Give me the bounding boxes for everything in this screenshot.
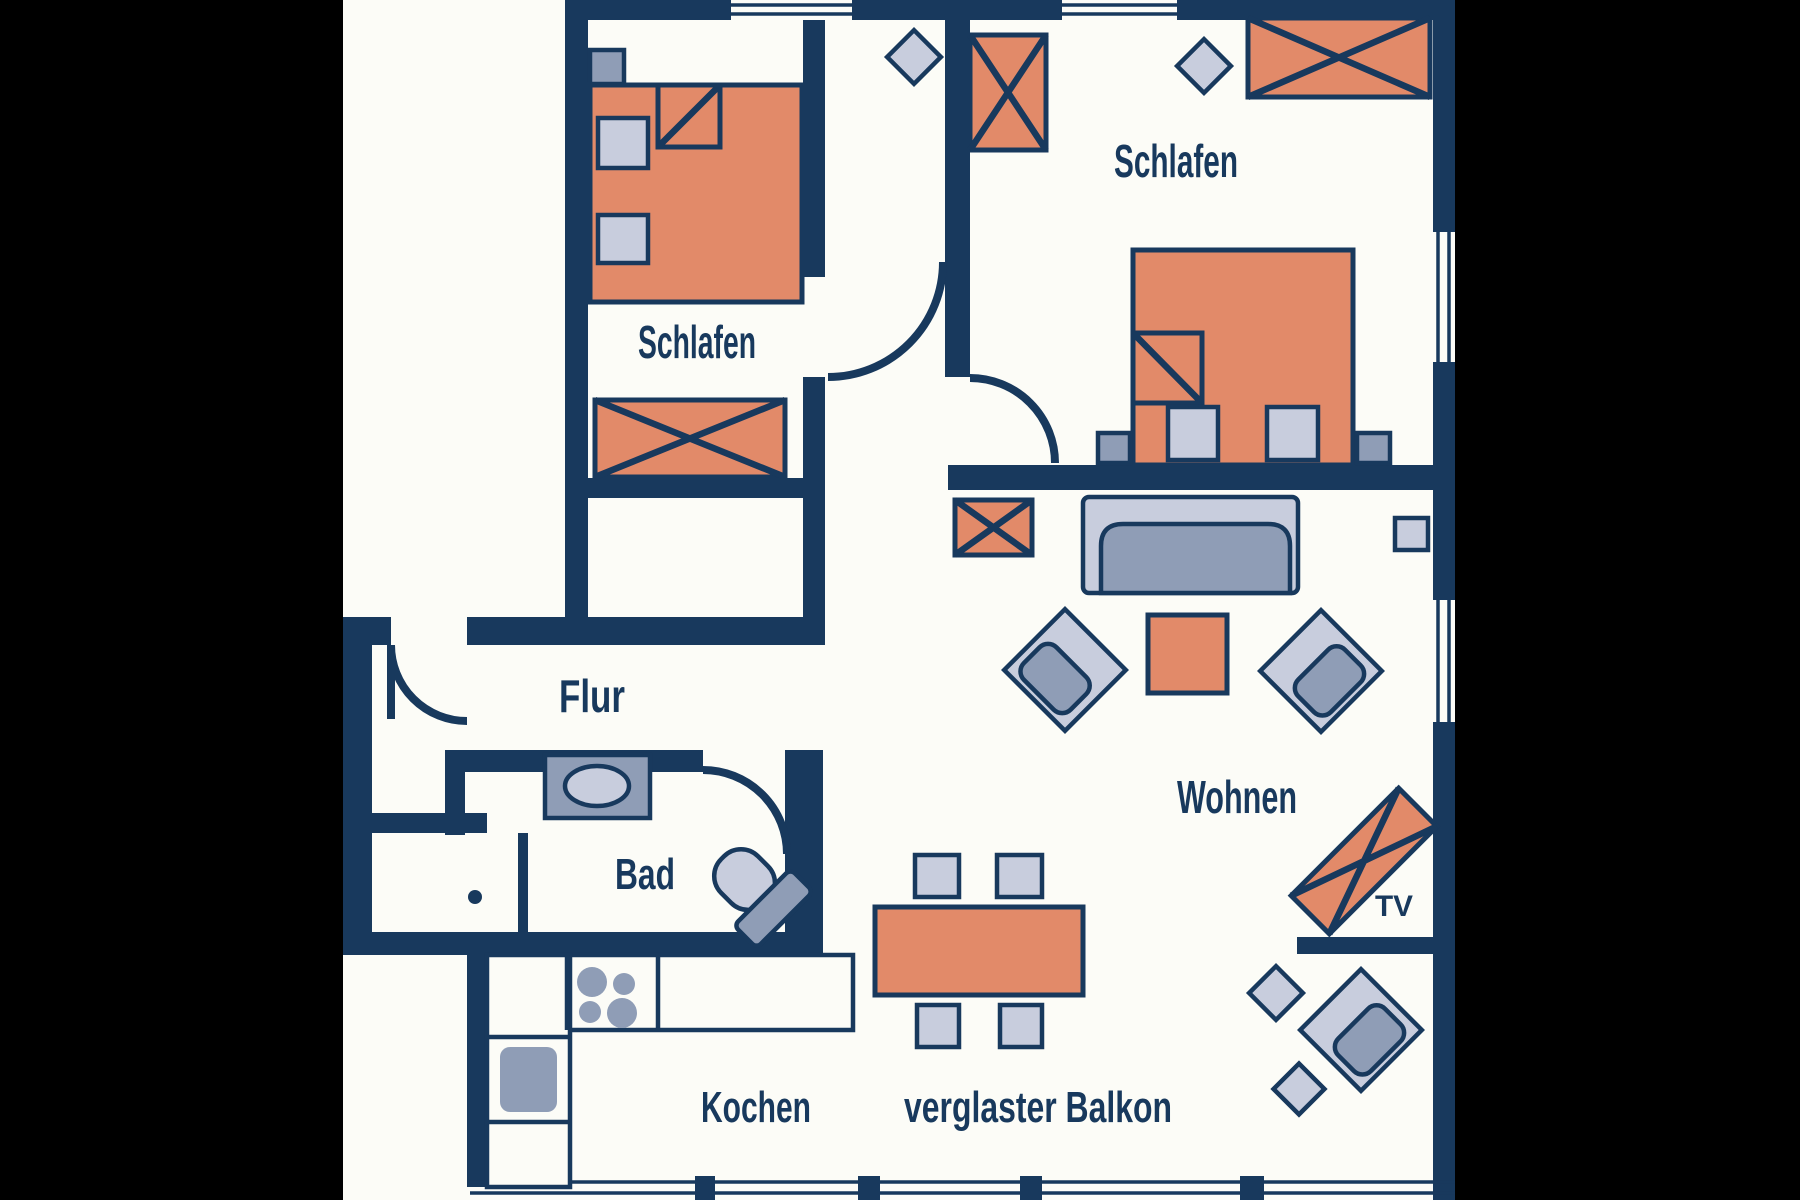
room-label-bathroom: Bad xyxy=(615,850,675,899)
pillow-icon xyxy=(598,118,648,168)
chair-icon xyxy=(917,1005,959,1047)
wall-bedroomR-south xyxy=(948,465,1455,490)
wall-kitchen-west xyxy=(467,955,487,1187)
sink-basin xyxy=(565,766,629,806)
wall-bedroomL-east-lower xyxy=(803,377,825,645)
wall-bedroomL-south xyxy=(565,478,805,498)
wall-storage-north xyxy=(372,813,487,833)
dresser-icon xyxy=(590,50,624,84)
glazing-post xyxy=(695,1176,715,1200)
wall-right-1 xyxy=(1433,0,1455,232)
sofa-seat xyxy=(1101,524,1290,593)
wall-hall-north-right xyxy=(467,617,825,645)
kitchen-sink-icon xyxy=(500,1047,557,1112)
pillow-icon xyxy=(598,215,648,263)
nightstand-icon xyxy=(1098,433,1130,463)
room-label-balcony: verglaster Balkon xyxy=(904,1083,1172,1132)
chair-icon xyxy=(915,855,959,897)
storage-drain-dot xyxy=(468,890,482,904)
wardrobe-icon xyxy=(595,400,785,477)
room-label-bedroom-right: Schlafen xyxy=(1114,135,1238,187)
sink-icon xyxy=(545,755,650,818)
room-label-living: Wohnen xyxy=(1177,771,1297,823)
floor-plan-page: Schlafen Schlafen Flur Bad Wohnen Kochen… xyxy=(0,0,1800,1200)
floor-plan-drawing: Schlafen Schlafen Flur Bad Wohnen Kochen… xyxy=(0,0,1800,1200)
burner xyxy=(577,967,607,997)
chair-icon xyxy=(1000,1005,1042,1047)
wall-right-3 xyxy=(1433,722,1455,1200)
bedroom-left xyxy=(590,50,802,477)
room-label-hallway: Flur xyxy=(559,670,625,722)
wall-west-upper xyxy=(565,0,588,645)
wall-top-a xyxy=(565,0,731,20)
pillow-icon xyxy=(1267,407,1318,460)
side-table-icon xyxy=(1395,518,1428,550)
burner xyxy=(579,1001,601,1023)
wall-corridor-east xyxy=(945,20,970,377)
wall-west-lower xyxy=(343,617,372,955)
wall-top-b xyxy=(852,0,1062,20)
room-label-bedroom-left: Schlafen xyxy=(638,316,756,368)
burner xyxy=(613,973,635,995)
wall-tv-stub xyxy=(1297,937,1442,954)
room-label-kitchen: Kochen xyxy=(701,1083,811,1132)
dining-table-icon xyxy=(875,907,1083,995)
wardrobe-icon xyxy=(970,35,1046,150)
sofa-icon xyxy=(1083,497,1298,593)
room-label-tv: TV xyxy=(1375,890,1413,923)
sideboard-icon xyxy=(955,500,1032,555)
burner xyxy=(607,998,637,1028)
glazing-post xyxy=(1240,1176,1264,1200)
wall-storage-east xyxy=(518,833,528,932)
pillow-icon xyxy=(1168,407,1218,460)
chair-icon xyxy=(997,855,1042,897)
glazing-post xyxy=(858,1176,880,1200)
glazing-post xyxy=(1020,1176,1042,1200)
nightstand-icon xyxy=(1357,433,1390,463)
coffee-table-icon xyxy=(1148,615,1227,693)
wall-bedroomL-east-upper xyxy=(803,20,825,277)
wardrobe-icon xyxy=(1248,18,1430,97)
